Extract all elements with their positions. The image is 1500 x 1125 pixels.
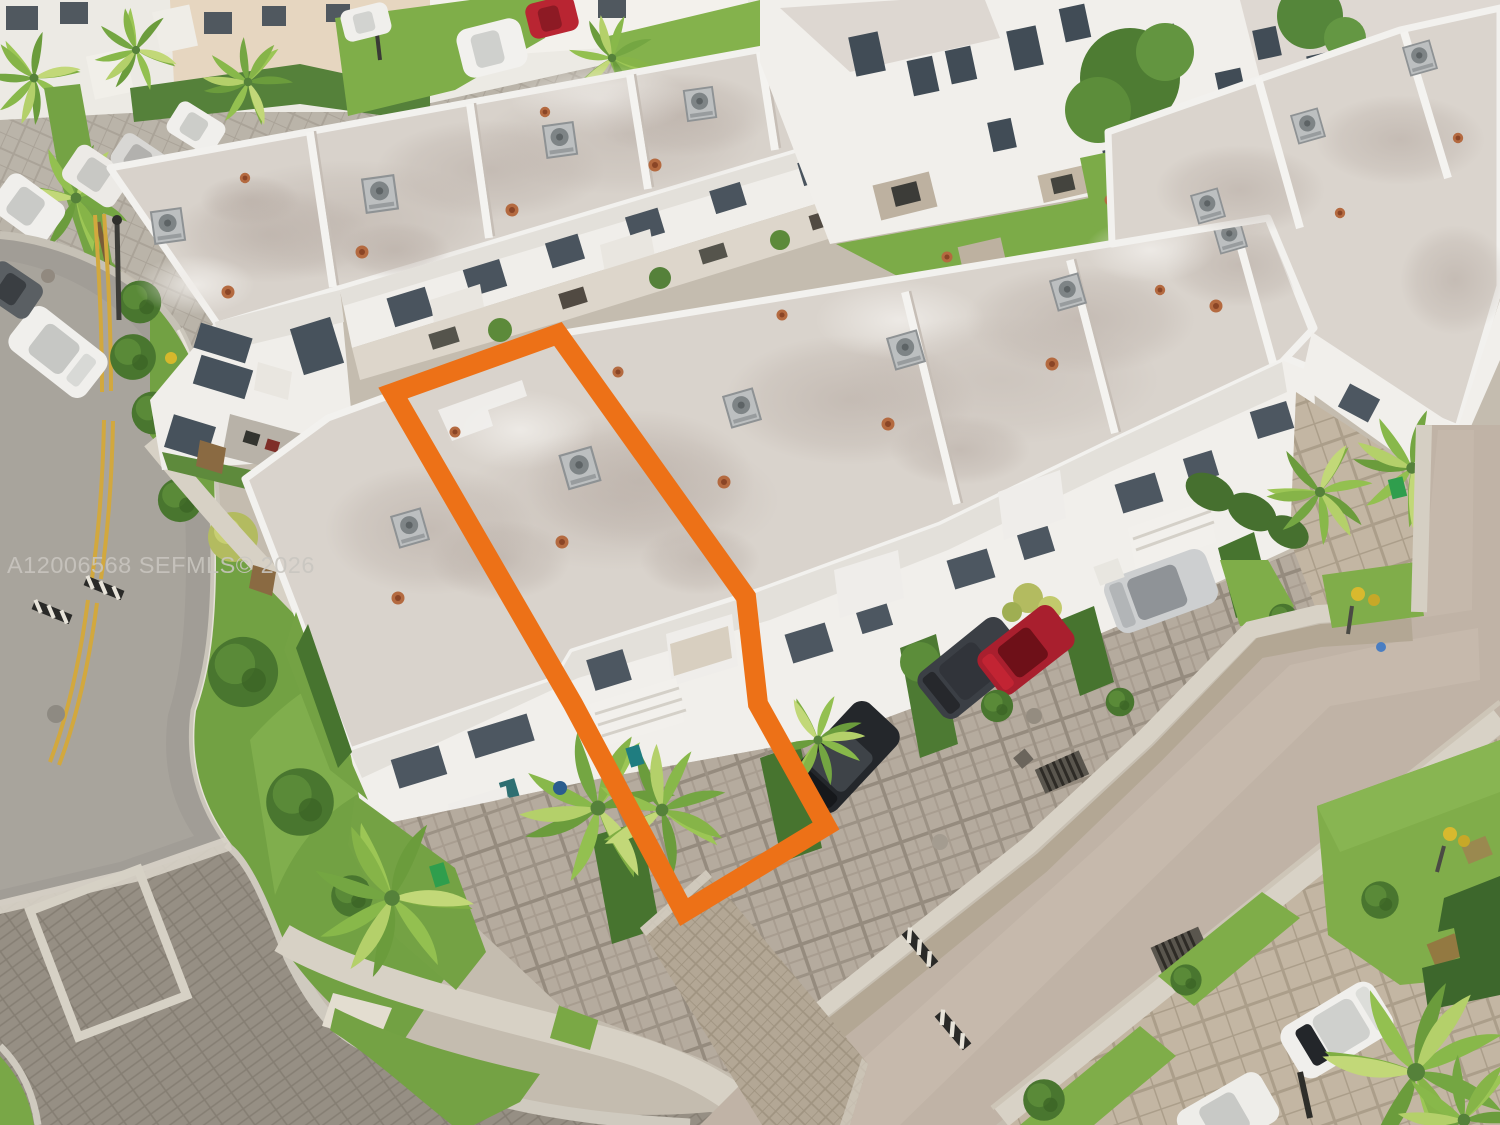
svg-text:A12006568 SEFMLS© 2026: A12006568 SEFMLS© 2026 — [7, 552, 315, 578]
